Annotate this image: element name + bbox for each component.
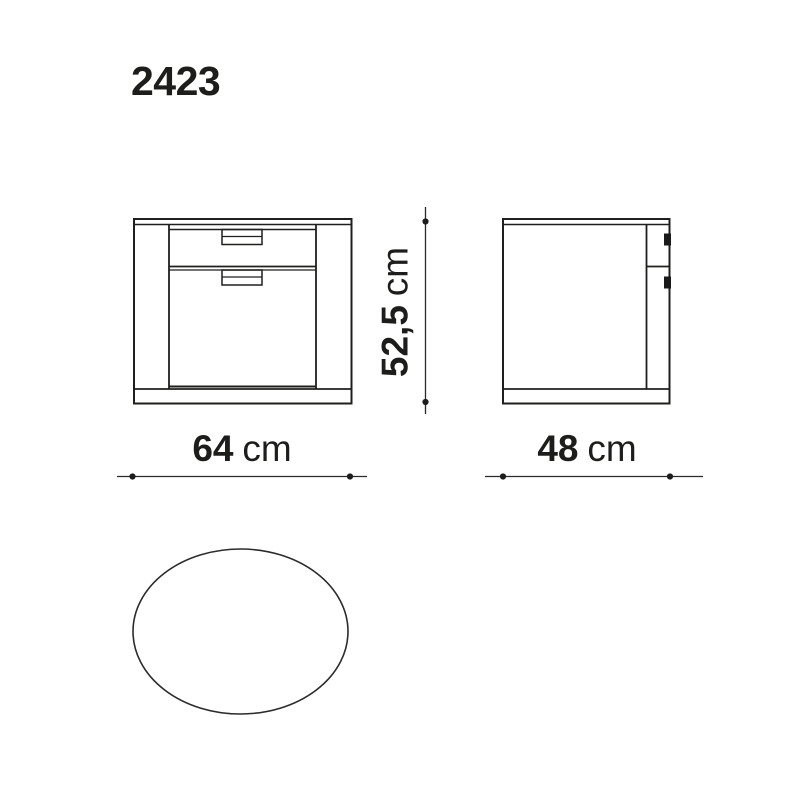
dimension-endpoint-dot	[500, 473, 506, 479]
lower-drawer-handle	[222, 270, 262, 285]
technical-drawing	[0, 0, 800, 800]
width-value: 64	[192, 428, 233, 469]
dimension-endpoint-dot	[422, 218, 428, 224]
dimension-endpoint-dot	[667, 473, 673, 479]
oval-top-outline	[133, 549, 348, 714]
side-view	[503, 219, 671, 404]
dimension-endpoint-dot	[129, 473, 135, 479]
dimension-endpoint-dot	[422, 399, 428, 405]
side-lower-handle-tab	[664, 277, 671, 289]
side-upper-handle-tab	[664, 234, 671, 246]
depth-value: 48	[537, 428, 578, 469]
upper-drawer-handle	[222, 230, 262, 245]
front-outline	[134, 219, 352, 404]
top-view	[133, 549, 348, 714]
height-dimension-line	[422, 207, 428, 414]
side-outline	[503, 219, 670, 404]
height-unit: cm	[375, 247, 416, 296]
width-unit: cm	[242, 428, 291, 469]
dimension-endpoint-dot	[347, 473, 353, 479]
front-view	[134, 219, 352, 404]
depth-unit: cm	[587, 428, 636, 469]
width-dimension-line	[117, 473, 367, 479]
depth-dimension-label: 48cm	[537, 429, 636, 470]
depth-dimension-line	[485, 473, 703, 479]
height-dimension-label: 52,5cm	[376, 247, 417, 377]
model-number: 2423	[131, 59, 220, 104]
width-dimension-label: 64cm	[192, 429, 291, 470]
spec-sheet: 2423 64cm 48cm 52,5cm	[0, 0, 800, 800]
height-value: 52,5	[375, 305, 416, 377]
